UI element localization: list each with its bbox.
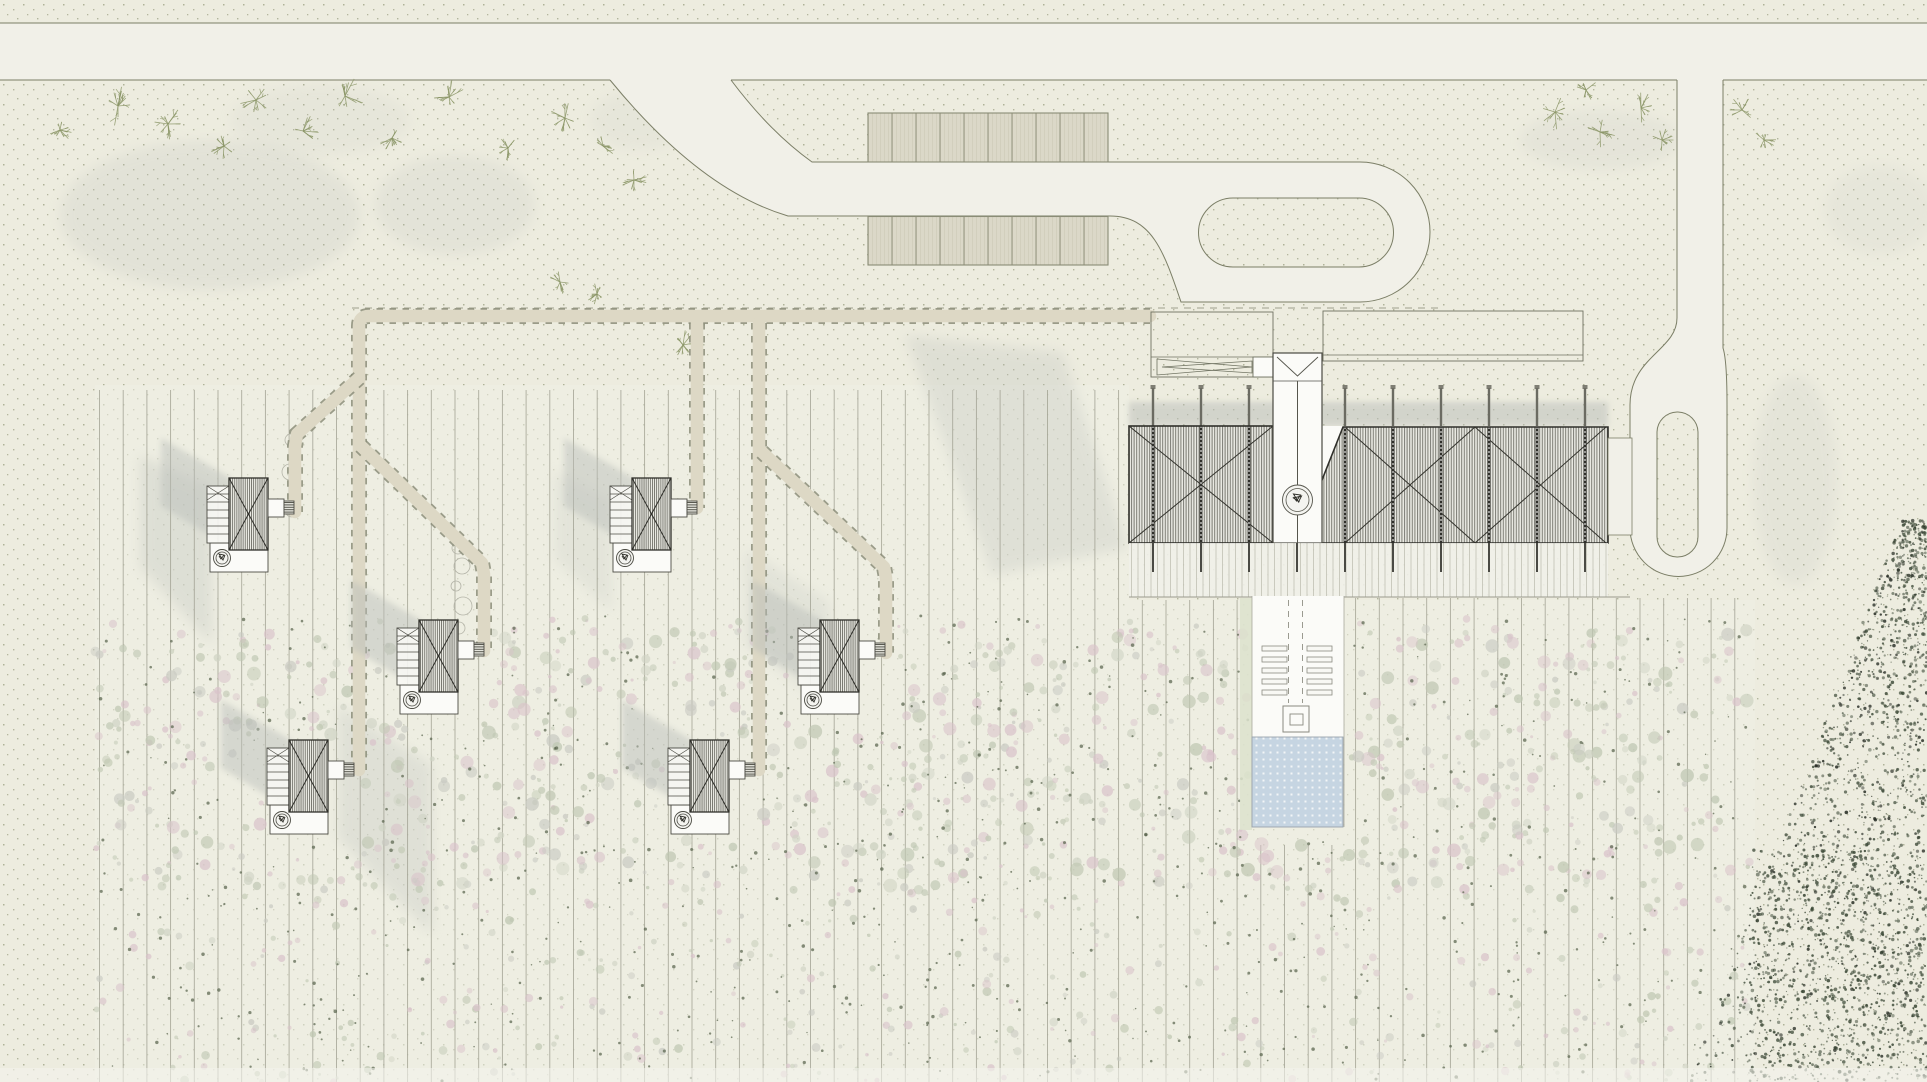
wild-speck [1896,969,1898,971]
wild-speck [1892,737,1893,738]
wild-speck [1762,956,1764,958]
wild-speck [1826,801,1828,803]
wild-speck [1810,1003,1812,1005]
wild-speck [1800,891,1802,893]
wild-speck [1806,959,1809,962]
ground-speck [1629,932,1631,934]
wild-speck [1879,647,1882,650]
wild-speck [1880,951,1883,954]
wild-speck [1905,592,1908,595]
ground-speck [1344,909,1347,912]
shrub-dot [1198,649,1206,657]
wild-speck [1889,578,1893,582]
ground-speck [1363,929,1365,931]
wild-speck [1905,544,1908,547]
ground-speck [582,795,584,797]
ground-speck [633,951,635,953]
shrub-dot [142,874,149,881]
shrub-dot [1598,983,1603,988]
ground-speck [663,1050,666,1053]
shrub-dot [329,671,337,679]
wild-speck [1920,575,1922,577]
wild-speck [1801,990,1804,993]
shrub-dot [1455,735,1461,741]
wild-speck [1785,959,1787,961]
wild-speck [1898,947,1899,948]
wild-speck [1741,940,1744,943]
shrub-dot [543,633,549,639]
wild-speck [1910,638,1912,640]
shrub-dot [1061,682,1066,687]
ground-speck [604,615,606,617]
ground-speck [1322,841,1324,843]
shrub-dot [239,639,249,649]
wild-speck [1855,987,1857,989]
ground-speck [647,848,651,852]
wild-speck [1776,1039,1779,1042]
wild-speck [1896,547,1898,549]
wild-speck [1915,1050,1916,1051]
shrub-dot [1592,661,1598,667]
shrub-dot [460,756,473,769]
wild-speck [1922,669,1925,672]
shrub-dot [698,844,704,850]
wild-speck [1864,897,1865,898]
ground-speck [908,1042,909,1043]
shrub-dot [202,756,207,761]
wild-speck [1801,938,1803,940]
ground-speck [624,679,627,682]
wild-speck [1806,884,1809,887]
shrub-dot [1092,715,1102,725]
ground-speck [531,964,532,965]
wild-speck [1916,1040,1920,1044]
shrub-dot [1471,740,1479,748]
wild-speck [1854,654,1855,655]
wild-speck [1846,1066,1848,1068]
wild-speck [1842,712,1844,714]
ground-speck [263,712,264,713]
shrub-dot [119,710,131,722]
shrub-dot [425,958,431,964]
wild-speck [1870,1065,1871,1066]
ground-speck [788,1000,790,1002]
wild-speck [1800,853,1803,856]
wild-speck [1895,564,1898,567]
wild-speck [1916,630,1918,632]
shrub-dot [559,637,566,644]
ground-speck [580,941,582,943]
ground-speck [1377,1007,1379,1009]
ground-speck [996,998,998,1000]
wild-speck [1890,769,1894,773]
ground-speck [855,850,857,852]
wild-speck [1765,971,1768,974]
shrub-dot [1130,719,1137,726]
shrub-dot [186,751,196,761]
shrub-dot [649,635,662,648]
ground-speck [197,1025,199,1027]
ground-speck [1461,826,1463,828]
wild-speck [1845,913,1848,916]
ground-speck [1462,891,1464,893]
ground-speck [1456,805,1458,807]
ground-speck [1405,988,1407,990]
wild-speck [1901,562,1904,565]
ground-speck [331,913,334,916]
shrub-dot [784,721,791,728]
shrub-dot [1648,992,1656,1000]
shrub-dot [1033,911,1040,918]
shrub-dot [285,661,297,673]
shrub-dot [1490,680,1498,688]
shrub-dot [869,965,875,971]
wild-speck [1884,626,1885,627]
shrub-dot [898,654,903,659]
wild-speck [1769,1029,1772,1032]
wild-speck [1841,963,1843,965]
wild-speck [1879,1019,1881,1021]
wild-speck [1921,519,1923,521]
shrub-dot [989,660,1001,672]
wild-speck [1859,733,1862,736]
wild-speck [1881,1060,1883,1062]
wild-speck [1759,1032,1760,1033]
wild-speck [1809,911,1810,912]
wild-speck [1777,1032,1779,1034]
shrub-dot [512,640,516,644]
wild-speck [1908,673,1912,677]
wild-speck [1899,1051,1901,1053]
shrub-dot [556,862,569,875]
shrub-dot [384,791,390,797]
wild-speck [1869,635,1872,638]
wild-speck [1904,615,1905,616]
shrub-dot [1117,1056,1122,1061]
wild-speck [1808,1055,1810,1057]
ground-speck [1366,980,1368,982]
wild-speck [1833,752,1835,754]
wild-speck [1920,1037,1923,1040]
shrub-dot [148,786,152,790]
shrub-dot [1507,637,1519,649]
wild-speck [1866,863,1867,864]
shrub-dot [389,1056,395,1062]
ground-speck [293,960,296,963]
wild-speck [1899,819,1901,821]
shrub-dot [155,824,159,828]
wild-speck [1888,1041,1890,1043]
wild-speck [1812,819,1815,822]
wild-speck [1757,938,1759,940]
wild-speck [1843,1035,1845,1037]
wild-speck [1838,824,1840,826]
ground-speck [353,994,355,996]
ground-speck [1515,941,1517,943]
shrub-dot [960,869,968,877]
wild-speck [1849,859,1850,860]
shrub-dot [1498,657,1510,669]
wild-speck [1812,967,1815,970]
wild-speck [1897,568,1900,571]
overlay-layer [0,1068,1927,1082]
wild-speck [1912,672,1913,673]
shrub-dot [909,905,917,913]
shrub-dot [1705,811,1713,819]
ground-speck [216,799,218,801]
wild-speck [1907,1033,1909,1035]
wild-speck [1823,722,1826,725]
wild-speck [1875,710,1878,713]
wild-speck [1882,676,1885,679]
ground-speck [1191,677,1194,680]
shrub-dot [890,742,898,750]
shrub-dot [940,1007,949,1016]
wild-speck [1887,596,1888,597]
shrub-dot [351,866,355,870]
shrub-dot [1076,1011,1083,1018]
ground-speck [1510,995,1513,998]
shrub-dot [411,746,418,753]
ground-speck [1206,912,1208,914]
cabin-annex [268,499,284,517]
shrub-dot [1217,664,1228,675]
shrub-dot [742,655,747,660]
wild-speck [1756,870,1758,872]
ground-speck [1742,1006,1745,1009]
shrub-dot [952,674,958,680]
wild-speck [1895,593,1898,596]
shrub-dot [1216,697,1224,705]
shrub-dot [909,696,915,702]
ground-speck [1580,741,1583,744]
shrub-dot [770,764,776,770]
ground-speck [291,628,294,631]
wild-speck [1817,926,1818,927]
shrub-dot [1570,905,1578,913]
shrub-dot [472,902,479,909]
wild-speck [1835,946,1838,949]
shrub-dot [166,670,177,681]
wild-speck [1902,752,1903,753]
wild-speck [1781,929,1784,932]
wild-speck [1800,927,1803,930]
ground-speck [861,1005,863,1007]
wild-speck [1908,898,1910,900]
shrub-dot [1050,1027,1054,1031]
wild-speck [1829,959,1831,961]
shrub-dot [865,1053,869,1057]
wild-speck [1873,599,1875,601]
shrub-dot [1655,849,1663,857]
shrub-dot [1315,934,1321,940]
ground-speck [961,939,964,942]
wild-speck [1880,935,1881,936]
wild-speck [1863,1011,1865,1013]
ground-speck [750,858,752,860]
shrub-dot [1169,719,1174,724]
ground-speck [902,808,904,810]
wild-speck [1760,978,1762,980]
ground-speck [1076,646,1078,648]
shrub-dot [446,1020,455,1029]
ground-speck [899,1005,902,1008]
ground-speck [734,987,736,989]
shrub-dot [983,947,988,952]
wild-speck [1854,656,1857,659]
wild-speck [1908,866,1911,869]
wild-speck [1850,857,1852,859]
wild-speck [1924,718,1926,720]
wild-speck [1879,836,1881,838]
shrub-dot [408,795,421,808]
shrub-dot [1676,641,1684,649]
wild-speck [1914,974,1916,976]
ground-speck [293,930,294,931]
wild-speck [1750,997,1753,1000]
ground-speck [1204,791,1207,794]
wild-speck [1914,674,1915,675]
shrub-dot [1551,752,1559,760]
shrub-dot [1063,993,1067,997]
wild-speck [1890,677,1891,678]
wild-speck [1917,951,1921,955]
shrub-dot [887,1007,893,1013]
shrub-dot [1011,1030,1019,1038]
ground-speck [1731,948,1733,950]
wild-speck [1909,738,1912,741]
shrub-dot [1070,1059,1076,1065]
ground-speck [193,692,195,694]
wild-speck [1892,541,1896,545]
shrub-dot [251,1028,257,1034]
wild-speck [1906,722,1909,725]
wild-speck [1882,597,1883,598]
wild-speck [1826,986,1829,989]
wild-speck [1767,944,1768,945]
wild-speck [1764,946,1766,948]
wild-speck [1896,768,1899,771]
ground-speck [1628,1003,1631,1006]
shrub-dot [1330,927,1334,931]
shrub-dot [1270,865,1283,878]
ground-speck [845,1011,848,1014]
wild-speck [1753,914,1757,918]
wild-speck [1741,938,1743,940]
wild-speck [1867,621,1869,623]
wild-speck [1823,1053,1825,1055]
ground-speck [682,905,684,907]
ground-speck [1471,903,1474,906]
wild-speck [1909,942,1911,944]
wild-speck [1868,705,1871,708]
wild-speck [1841,932,1843,934]
shrub-dot [599,958,603,962]
shrub-dot [1333,894,1340,901]
wild-speck [1891,592,1894,595]
wild-speck [1886,969,1888,971]
wild-speck [1853,894,1855,896]
wild-speck [1887,726,1889,728]
ground-speck [1633,943,1635,945]
wild-speck [1853,989,1855,991]
ground-speck [618,882,620,884]
wild-speck [1897,919,1900,922]
shrub-dot [1368,630,1373,635]
wild-speck [1768,891,1770,893]
wild-speck [1774,904,1776,906]
ground-speck [196,863,198,865]
wild-speck [1787,854,1790,857]
wild-speck [1896,556,1898,558]
wild-speck [1871,968,1873,970]
wild-speck [1868,654,1871,657]
ground-speck [159,916,161,918]
shrub-dot [1199,857,1205,863]
wild-speck [1882,743,1885,746]
wild-speck [1914,877,1916,879]
wild-speck [1893,656,1896,659]
shrub-dot [296,858,299,861]
shrub-dot [1376,763,1382,769]
road-island-stipple [1657,412,1698,557]
wild-speck [1909,691,1912,694]
shrub-dot [1060,819,1066,825]
ground-speck [1390,1015,1392,1017]
wild-speck [1893,672,1896,675]
ground-speck [806,1032,807,1033]
wild-speck [1777,1052,1780,1055]
shrub-dot [1711,795,1719,803]
shrub-dot [971,1030,976,1035]
shrub-dot [348,1020,354,1026]
wild-speck [1896,571,1900,575]
wild-speck [1914,1005,1917,1008]
ground-speck [934,986,937,989]
shrub-dot [1154,876,1165,887]
shrub-dot [729,843,738,852]
wild-speck [1832,1019,1833,1020]
shrub-dot [1469,823,1476,830]
shrub-dot [482,726,496,740]
shrub-dot [143,706,151,714]
wild-speck [1885,559,1888,562]
shrub-dot [273,1034,276,1037]
ground-speck [910,705,912,707]
ground-speck [518,797,521,800]
wild-speck [1898,883,1899,884]
wild-speck [1899,735,1901,737]
shrub-dot [1646,823,1655,832]
ground-speck [1570,671,1572,673]
shrub-dot [1573,744,1585,756]
ground-speck [320,998,323,1001]
wild-speck [1850,882,1852,884]
ground-speck [1564,889,1568,893]
wild-speck [1842,694,1844,696]
shrub-dot [375,667,382,674]
wild-speck [1737,953,1739,955]
ground-speck [223,903,225,905]
wild-speck [1887,1012,1890,1015]
shrub-dot [1110,991,1118,999]
shrub-dot [1609,851,1615,857]
shrub-dot [1369,769,1377,777]
wild-speck [1868,674,1871,677]
wild-speck [1851,859,1854,862]
wild-speck [1894,973,1895,974]
wild-speck [1846,722,1849,725]
